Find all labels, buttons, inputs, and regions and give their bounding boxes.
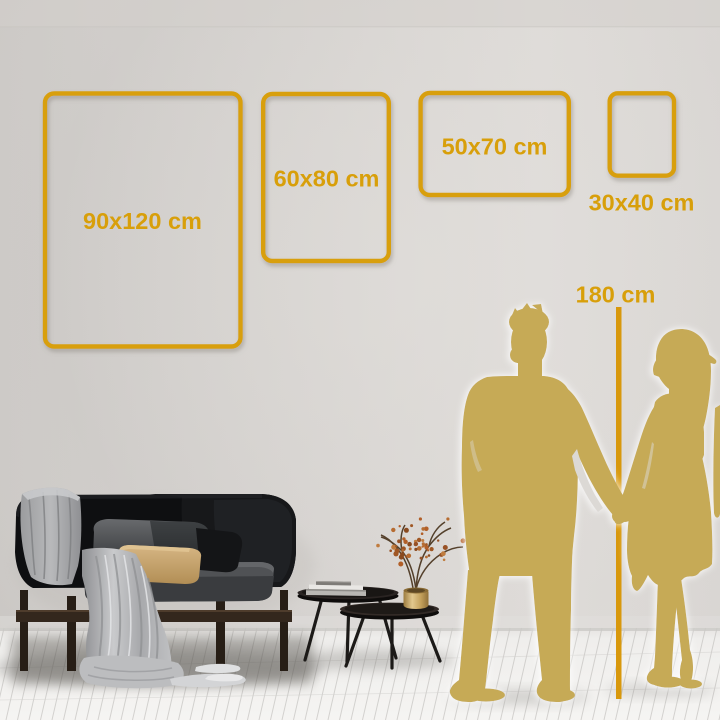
svg-text:60x80 cm: 60x80 cm [274, 166, 380, 192]
svg-text:30x40 cm: 30x40 cm [589, 190, 695, 216]
svg-text:180 cm: 180 cm [576, 282, 656, 308]
svg-text:50x70 cm: 50x70 cm [442, 134, 548, 160]
svg-text:90x120 cm: 90x120 cm [83, 208, 202, 234]
